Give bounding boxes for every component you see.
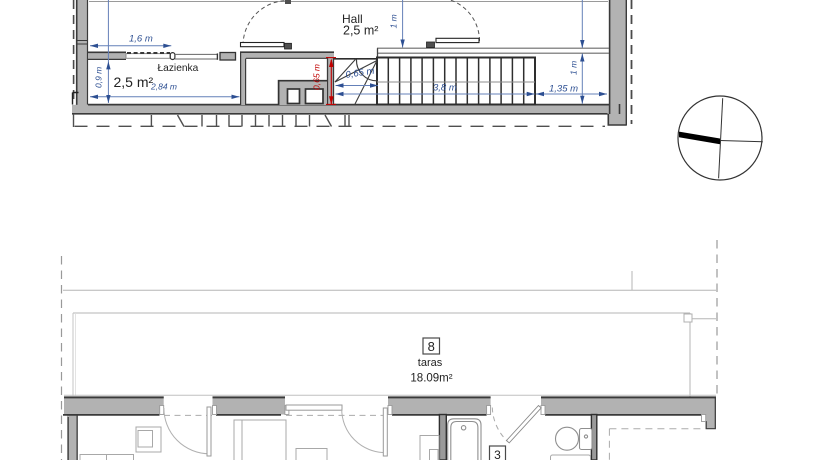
svg-text:Łazienka: Łazienka [158,63,199,74]
svg-text:8: 8 [428,339,435,354]
svg-text:taras: taras [418,357,443,369]
svg-text:18.09m²: 18.09m² [410,373,452,385]
svg-text:1,6 m: 1,6 m [129,34,153,45]
svg-text:1,35 m: 1,35 m [549,84,578,95]
svg-text:0,65 m: 0,65 m [345,66,375,81]
svg-text:3: 3 [494,448,501,460]
svg-text:0,9 m: 0,9 m [94,67,104,88]
svg-text:0,65 m: 0,65 m [312,64,322,90]
svg-text:2,84 m: 2,84 m [150,82,177,92]
svg-text:2,5 m²: 2,5 m² [343,24,378,38]
svg-text:2,5 m²: 2,5 m² [114,74,154,90]
svg-text:1 m: 1 m [569,61,579,75]
svg-text:3,8 m: 3,8 m [433,83,457,94]
svg-text:1 m: 1 m [389,14,399,28]
